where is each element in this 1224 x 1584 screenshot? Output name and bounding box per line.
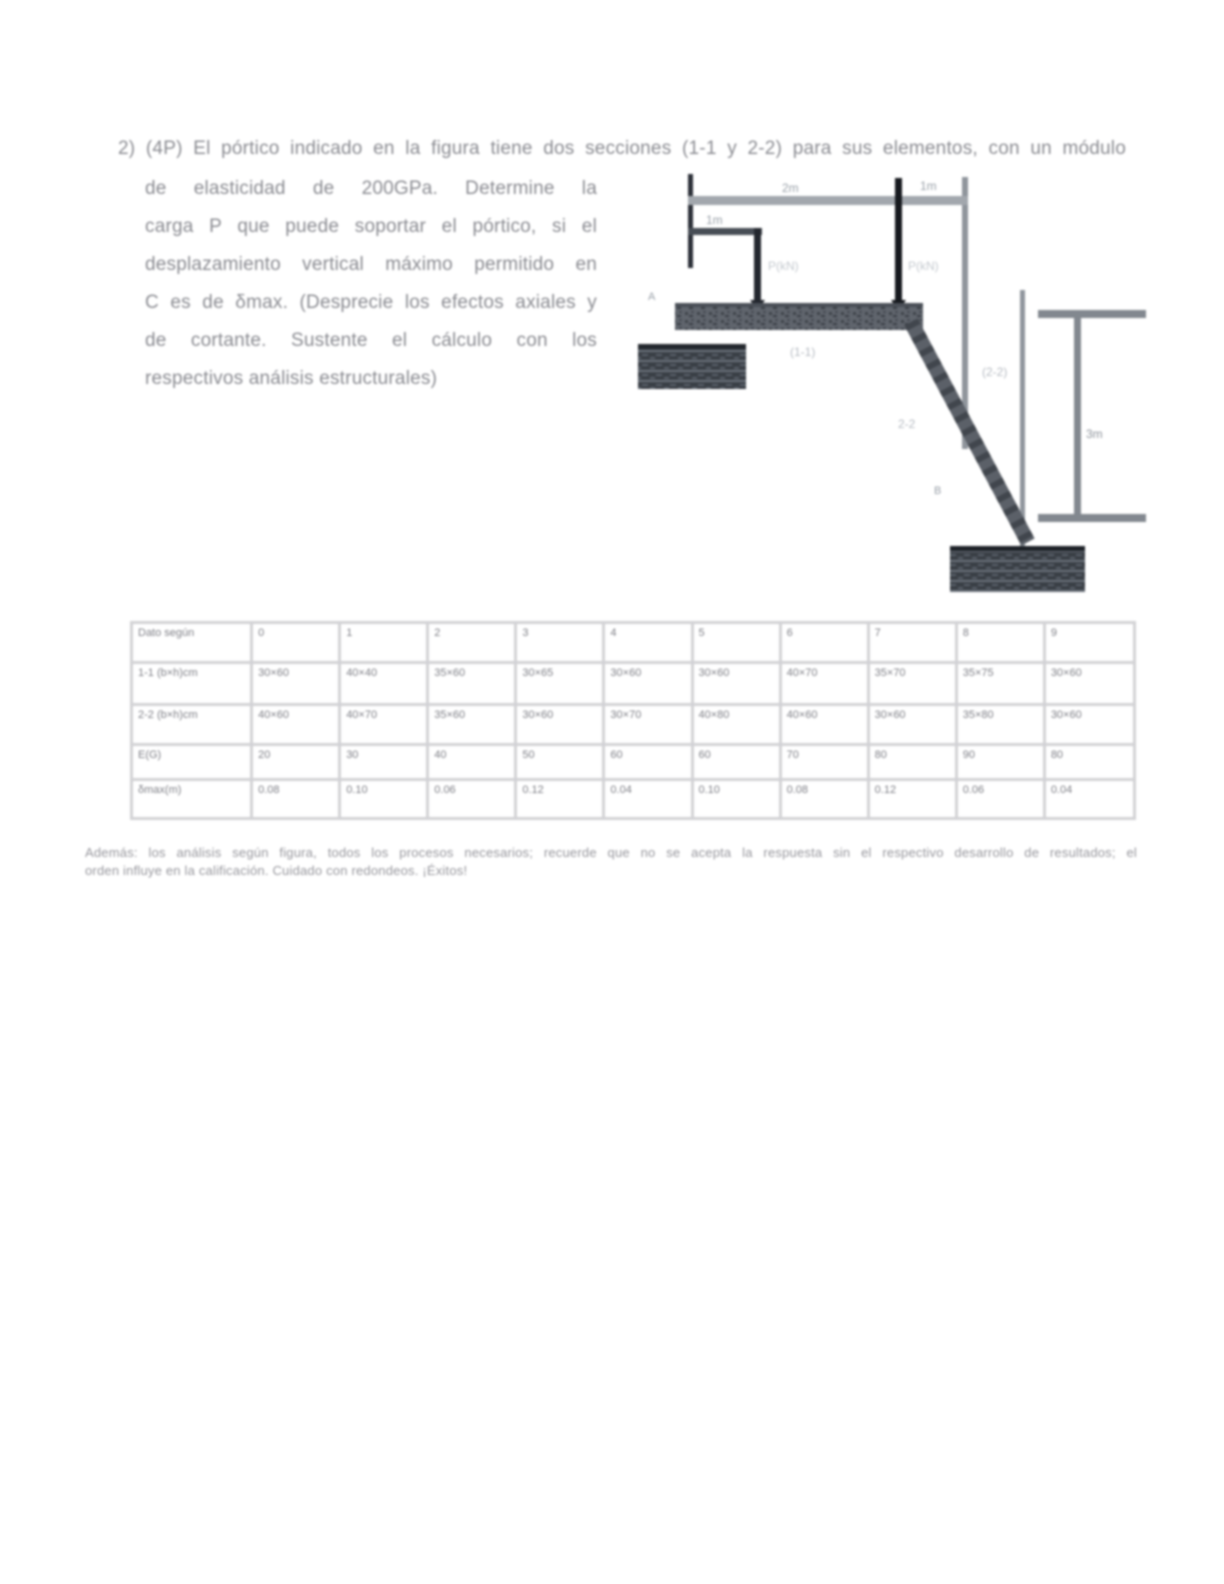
footnote-line: Además: los análisis según figura, todos… <box>85 844 1137 862</box>
variant-table: Dato según01234567891-1 (b×h)cm30×6040×4… <box>130 621 1136 820</box>
statement-line: C es de δmax. (Desprecie los efectos axi… <box>145 284 597 322</box>
table-cell-value: 30×60 <box>1044 705 1134 745</box>
beam-top-edge <box>675 303 923 307</box>
table-cell-value: 30×60 <box>692 663 780 705</box>
dimension-line-right <box>1038 310 1146 522</box>
table-header-label: Dato según <box>132 623 252 663</box>
table-header-digit: 5 <box>692 623 780 663</box>
node-label-a: A <box>648 291 656 303</box>
table-cell-value: 60 <box>604 745 692 780</box>
table-header-digit: 9 <box>1044 623 1134 663</box>
table-header-digit: 7 <box>868 623 956 663</box>
problem-statement-body: de elasticidad de 200GPa. Determine la c… <box>145 170 597 398</box>
table-cell-value: 30×60 <box>868 705 956 745</box>
load-label-left: P(kN) <box>768 259 799 273</box>
table-cell-value: 30×60 <box>1044 663 1134 705</box>
table-cell-value: 30×65 <box>516 663 604 705</box>
node-label-b: B <box>934 485 941 497</box>
document-page: 2) (4P) El pórtico indicado en la figura… <box>0 0 1224 1584</box>
table-cell-value: 0.12 <box>868 780 956 819</box>
table-cell-value: 30×60 <box>604 663 692 705</box>
table-cell-value: 35×70 <box>868 663 956 705</box>
table-cell-value: 40×40 <box>340 663 428 705</box>
table-cell-value: 35×60 <box>428 663 516 705</box>
table-cell-value: 0.06 <box>956 780 1044 819</box>
load-label-right: P(kN) <box>908 259 939 273</box>
dimension-label-left: 1m <box>706 213 723 227</box>
table-cell-value: 30×60 <box>252 663 340 705</box>
table-cell-value: 40×70 <box>780 663 868 705</box>
table-row: 1-1 (b×h)cm30×6040×4035×6030×6530×6030×6… <box>132 663 1135 705</box>
table-row-label: E(G) <box>132 745 252 780</box>
footnote-line: orden influye en la calificación. Cuidad… <box>85 862 1137 880</box>
support-bottom <box>950 546 1085 592</box>
table-cell-value: 40×60 <box>780 705 868 745</box>
table-cell-value: 0.06 <box>428 780 516 819</box>
dimension-label-right: 3m <box>1086 427 1103 441</box>
table-cell-value: 35×75 <box>956 663 1044 705</box>
table-row-label: 1-1 (b×h)cm <box>132 663 252 705</box>
statement-line: respectivos análisis estructurales) <box>145 360 597 398</box>
frame-diagram: 2m 1m 1m P(kN) P(kN) A (1-1) 2-2 (2-2) <box>600 150 1160 620</box>
table-row: δmax(m)0.080.100.060.120.040.100.080.120… <box>132 780 1135 819</box>
table-row: Dato según0123456789 <box>132 623 1135 663</box>
statement-line: carga P que puede soportar el pórtico, s… <box>145 208 597 246</box>
table-header-digit: 4 <box>604 623 692 663</box>
table-cell-value: 80 <box>1044 745 1134 780</box>
footnote: Además: los análisis según figura, todos… <box>85 844 1137 880</box>
table-row: E(G)20304050606070809080 <box>132 745 1135 780</box>
table-cell-value: 40×70 <box>340 705 428 745</box>
statement-line: desplazamiento vertical máximo permitido… <box>145 246 597 284</box>
dimension-line-left <box>688 228 762 235</box>
section-label-beam: (1-1) <box>790 345 815 359</box>
table-cell-value: 20 <box>252 745 340 780</box>
table-cell-value: 30×60 <box>516 705 604 745</box>
table-row: 2-2 (b×h)cm40×6040×7035×6030×6030×7040×8… <box>132 705 1135 745</box>
table-header-digit: 2 <box>428 623 516 663</box>
table-cell-value: 50 <box>516 745 604 780</box>
beam-member <box>675 303 923 330</box>
table-cell-value: 0.08 <box>780 780 868 819</box>
table-cell-value: 30×70 <box>604 705 692 745</box>
table-cell-value: 0.12 <box>516 780 604 819</box>
load-arrow-left-icon <box>750 228 765 311</box>
table-cell-value: 0.04 <box>604 780 692 819</box>
table-cell-value: 40×60 <box>252 705 340 745</box>
table-header-digit: 6 <box>780 623 868 663</box>
table-cell-value: 80 <box>868 745 956 780</box>
table-row-label: 2-2 (b×h)cm <box>132 705 252 745</box>
table-cell-value: 0.10 <box>692 780 780 819</box>
dimension-line-top <box>688 196 968 205</box>
table-header-digit: 0 <box>252 623 340 663</box>
table-cell-value: 35×60 <box>428 705 516 745</box>
table-row-label: δmax(m) <box>132 780 252 819</box>
table-cell-value: 35×80 <box>956 705 1044 745</box>
extension-line-left <box>688 174 693 268</box>
table-cell-value: 0.10 <box>340 780 428 819</box>
statement-line: de cortante. Sustente el cálculo con los <box>145 322 597 360</box>
table-cell-value: 40×80 <box>692 705 780 745</box>
statement-line: de elasticidad de 200GPa. Determine la <box>145 170 597 208</box>
table-cell-value: 40 <box>428 745 516 780</box>
variant-table-wrap: Dato según01234567891-1 (b×h)cm30×6040×4… <box>130 621 1136 820</box>
table-cell-value: 30 <box>340 745 428 780</box>
table-header-digit: 1 <box>340 623 428 663</box>
section-label-diagonal: 2-2 <box>898 417 916 431</box>
table-header-digit: 3 <box>516 623 604 663</box>
table-cell-value: 0.04 <box>1044 780 1134 819</box>
support-left <box>638 344 746 389</box>
table-header-digit: 8 <box>956 623 1044 663</box>
table-cell-value: 60 <box>692 745 780 780</box>
dimension-label-top-right: 1m <box>920 179 937 193</box>
dimension-label-top-left: 2m <box>782 181 799 195</box>
table-cell-value: 0.08 <box>252 780 340 819</box>
table-cell-value: 70 <box>780 745 868 780</box>
section-label-diagonal-alt: (2-2) <box>982 365 1007 379</box>
table-cell-value: 90 <box>956 745 1044 780</box>
